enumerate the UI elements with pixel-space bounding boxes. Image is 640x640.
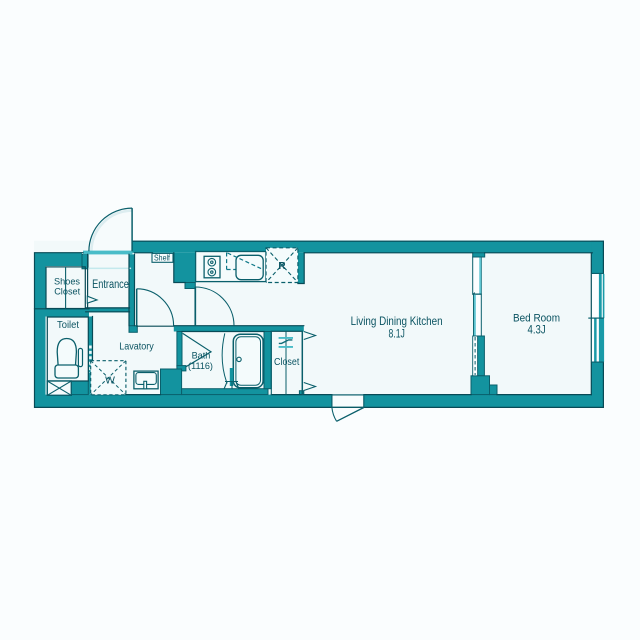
svg-text:Closet: Closet — [274, 357, 300, 368]
svg-text:8.1J: 8.1J — [389, 327, 405, 341]
svg-text:Entrance: Entrance — [92, 279, 129, 291]
svg-text:Closet: Closet — [54, 286, 80, 297]
svg-text:R: R — [278, 261, 286, 272]
svg-text:Lavatory: Lavatory — [119, 342, 154, 353]
svg-text:4.3J: 4.3J — [528, 323, 546, 336]
svg-text:W: W — [105, 376, 115, 387]
svg-text:Shelf: Shelf — [154, 253, 171, 263]
svg-text:(1116): (1116) — [188, 361, 213, 372]
svg-text:Toilet: Toilet — [57, 320, 79, 331]
